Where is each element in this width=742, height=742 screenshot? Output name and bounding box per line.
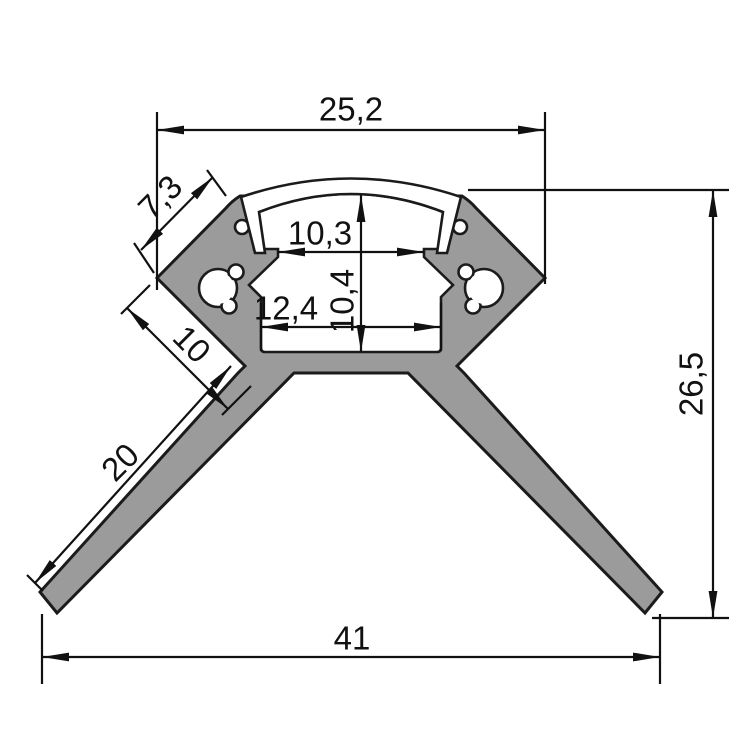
dim-label-channel-height: 10,4 xyxy=(324,269,361,333)
profile-drawing: 25,2 7,3 10 20 10,3 xyxy=(0,0,742,742)
dim-overall-width: 41 xyxy=(42,614,660,684)
dim-label-upper-left-face: 7,3 xyxy=(131,168,190,227)
dim-flange-length: 20 xyxy=(27,366,231,591)
dim-label-overall-height: 26,5 xyxy=(673,352,710,416)
dim-label-overall-width: 41 xyxy=(334,620,371,657)
dim-label-opening-width: 10,3 xyxy=(288,215,352,252)
dim-label-flange-length: 20 xyxy=(94,436,146,488)
dim-label-channel-width: 12,4 xyxy=(254,290,318,327)
technical-drawing-canvas: 25,2 7,3 10 20 10,3 xyxy=(0,0,742,742)
dim-label-top-width: 25,2 xyxy=(319,91,383,128)
